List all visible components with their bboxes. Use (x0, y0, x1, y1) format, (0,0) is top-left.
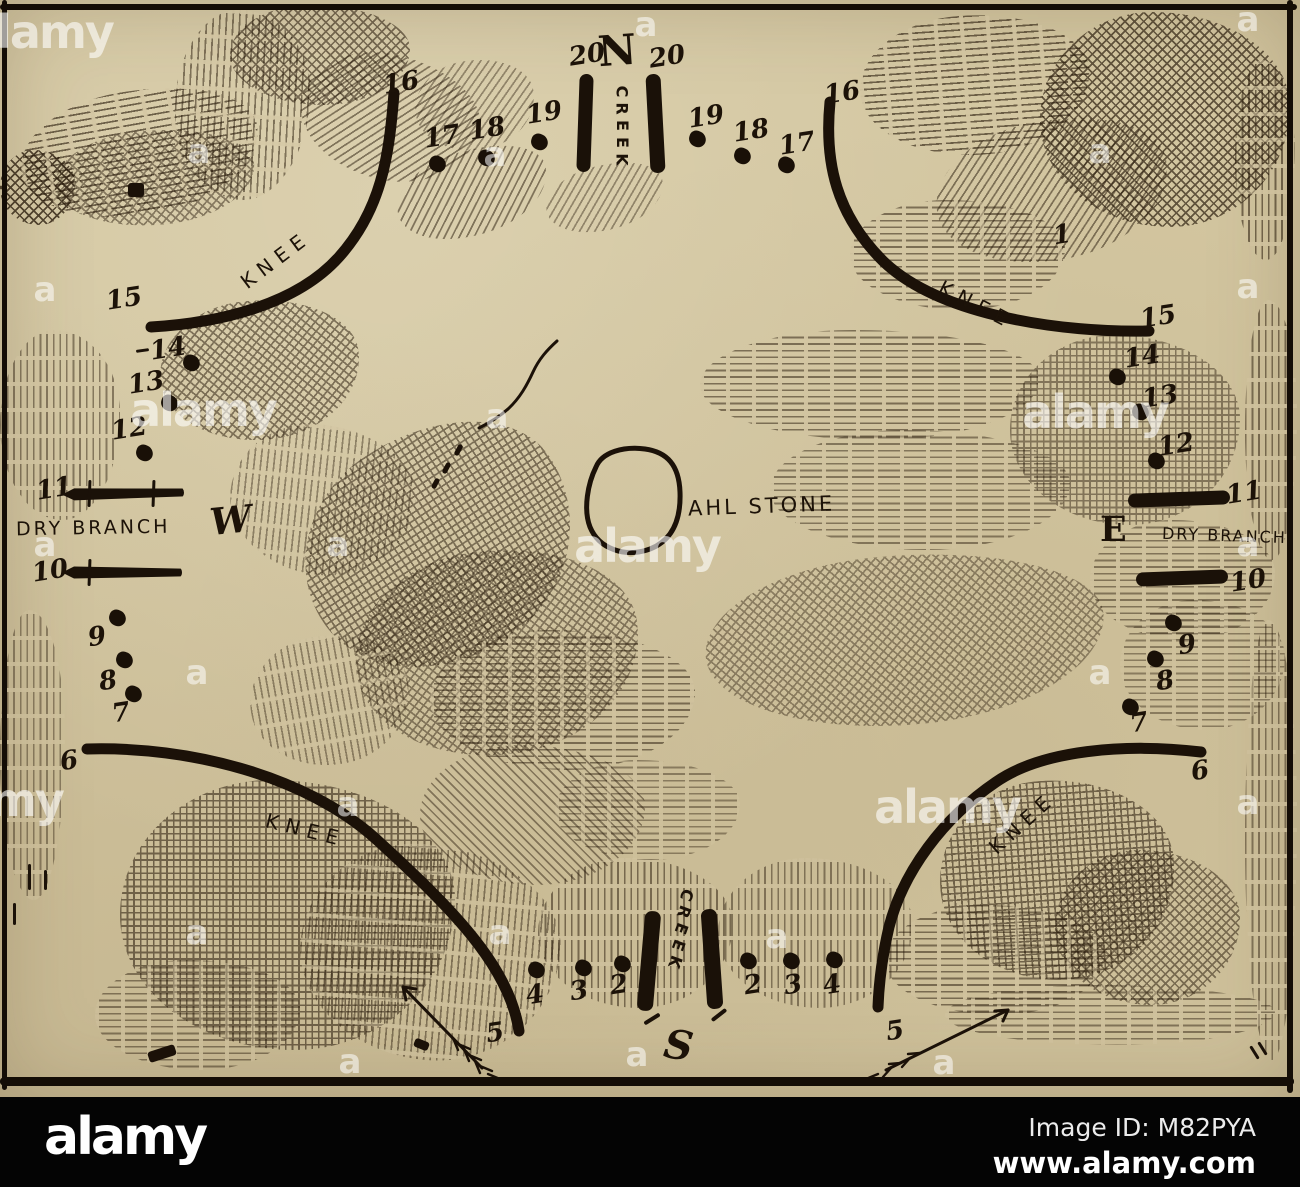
watermark-letter: a (635, 8, 658, 42)
watermark-word: alamy (0, 9, 113, 55)
station-label: 19 (686, 101, 726, 132)
station-label: 16 (381, 67, 421, 98)
map-frame-left (2, 0, 7, 1090)
hatch-patch (698, 538, 1111, 742)
compass-west: W (208, 500, 253, 541)
ink-mark (643, 1013, 660, 1026)
creek-letter: E (671, 920, 691, 936)
station-label: 2 (608, 971, 630, 1000)
station-label: 5 (484, 1019, 506, 1048)
watermark-letter: a (1237, 270, 1260, 304)
map-frame-right (1287, 0, 1293, 1093)
station-label: 3 (568, 977, 590, 1006)
station-label: 9 (1176, 631, 1198, 660)
compass-east: E (1100, 512, 1127, 547)
bar-tick (152, 480, 156, 507)
station-label: 1 (1051, 221, 1073, 250)
ink-mark (136, 348, 149, 353)
map-paper: N W E S CREEK CREEK AHL STONE DRY BRANCH… (0, 0, 1300, 1097)
station-label: 17 (422, 121, 462, 152)
hatch-patch (555, 760, 740, 860)
station-label: 4 (821, 971, 843, 1000)
creek-label-top: CREEK (609, 83, 635, 168)
watermark-word: alamy (574, 523, 720, 569)
dry-branch-bar (1128, 490, 1230, 508)
watermark-letter: a (34, 528, 57, 562)
creek-letter: E (614, 120, 631, 131)
watermark-letter: a (339, 1045, 362, 1079)
station-label: 14 (148, 333, 188, 364)
ink-mark (711, 1008, 728, 1022)
station-label: 9 (86, 623, 108, 652)
station-label: 10 (1228, 565, 1268, 596)
creek-letter: R (674, 903, 694, 920)
alamy-url-text: www.alamy.com (993, 1146, 1256, 1181)
watermark-letter: a (188, 135, 211, 169)
watermark-word: alamy (1022, 389, 1168, 435)
creek-letter: E (668, 937, 688, 953)
creek-letter: K (614, 153, 631, 165)
ink-mark (44, 870, 47, 890)
creek-letter: C (614, 86, 631, 98)
station-label: 2 (742, 971, 764, 1000)
station-label: 6 (1189, 757, 1211, 786)
bar-tick (88, 559, 92, 586)
watermark-letter: a (933, 1046, 956, 1080)
station-label: 8 (1154, 667, 1176, 696)
station-label: 20 (647, 41, 687, 72)
creek-bar (576, 74, 593, 172)
hatch-patch (1235, 60, 1295, 260)
hatch-patch (945, 985, 1275, 1045)
station-label: 18 (731, 115, 771, 146)
ink-mark (28, 864, 31, 890)
ink-mark (1249, 1045, 1259, 1059)
creek-letter: C (677, 887, 697, 904)
watermark-letter: a (1237, 528, 1260, 562)
hatch-patch (700, 330, 1040, 440)
hatch-patch (0, 610, 65, 900)
station-dot (529, 132, 550, 152)
watermark-letter: a (486, 400, 509, 434)
alamy-footer-bar: alamy Image ID: M82PYA www.alamy.com (0, 1097, 1300, 1187)
ink-mark (128, 183, 144, 197)
station-label: 16 (822, 77, 862, 108)
watermark-word: alamy (874, 784, 1020, 830)
dry-branch-label-east: DRY BRANCH (1162, 526, 1287, 546)
watermark-letter: a (1237, 786, 1260, 820)
station-label: 19 (524, 97, 564, 128)
alamy-logo: alamy (44, 1111, 205, 1163)
creek-letter: E (614, 137, 631, 148)
watermark-letter: a (1237, 3, 1260, 37)
station-label: 11 (34, 473, 74, 504)
compass-south: S (661, 1024, 695, 1068)
watermark-word: alamy (130, 387, 276, 433)
ahl-stone-label: AHL STONE (688, 493, 836, 519)
creek-letter: K (665, 953, 685, 970)
knee-label: KNEE (236, 225, 315, 293)
station-label: 4 (524, 981, 546, 1010)
creek-bar (645, 74, 665, 174)
watermark-letter: a (489, 916, 512, 950)
station-label: 20 (567, 39, 607, 70)
station-dot (114, 650, 135, 670)
scanned-map-page: N W E S CREEK CREEK AHL STONE DRY BRANCH… (0, 0, 1300, 1187)
station-dot (732, 146, 753, 166)
station-dot (134, 443, 155, 463)
watermark-letter: a (186, 656, 209, 690)
station-label: 17 (777, 128, 817, 159)
watermark-letter: a (186, 916, 209, 950)
dry-branch-bar (62, 566, 182, 579)
watermark-word: alamy (0, 777, 63, 823)
station-label: 6 (58, 747, 80, 776)
station-label: 7 (110, 699, 132, 728)
watermark-letter: a (34, 273, 57, 307)
station-label: 11 (1224, 477, 1264, 508)
creek-letter: R (613, 102, 630, 114)
station-label: 14 (1122, 341, 1162, 372)
watermark-letter: a (766, 920, 789, 954)
station-dot (107, 608, 128, 628)
watermark-letter: a (1089, 135, 1112, 169)
watermark-letter: a (484, 138, 507, 172)
map-frame-bottom (0, 1077, 1294, 1086)
image-id-block: Image ID: M82PYA www.alamy.com (993, 1113, 1256, 1181)
station-label: 5 (884, 1017, 906, 1046)
watermark-letter: a (626, 1038, 649, 1072)
ink-mark (13, 903, 16, 925)
watermark-letter: a (1089, 656, 1112, 690)
station-label: 15 (1138, 301, 1178, 332)
station-label: 8 (97, 667, 119, 696)
hatch-patch (95, 960, 300, 1070)
image-id-text: Image ID: M82PYA (993, 1113, 1256, 1143)
watermark-letter: a (337, 788, 360, 822)
station-label: 3 (782, 971, 804, 1000)
station-label: 15 (104, 283, 144, 314)
watermark-letter: a (327, 528, 350, 562)
